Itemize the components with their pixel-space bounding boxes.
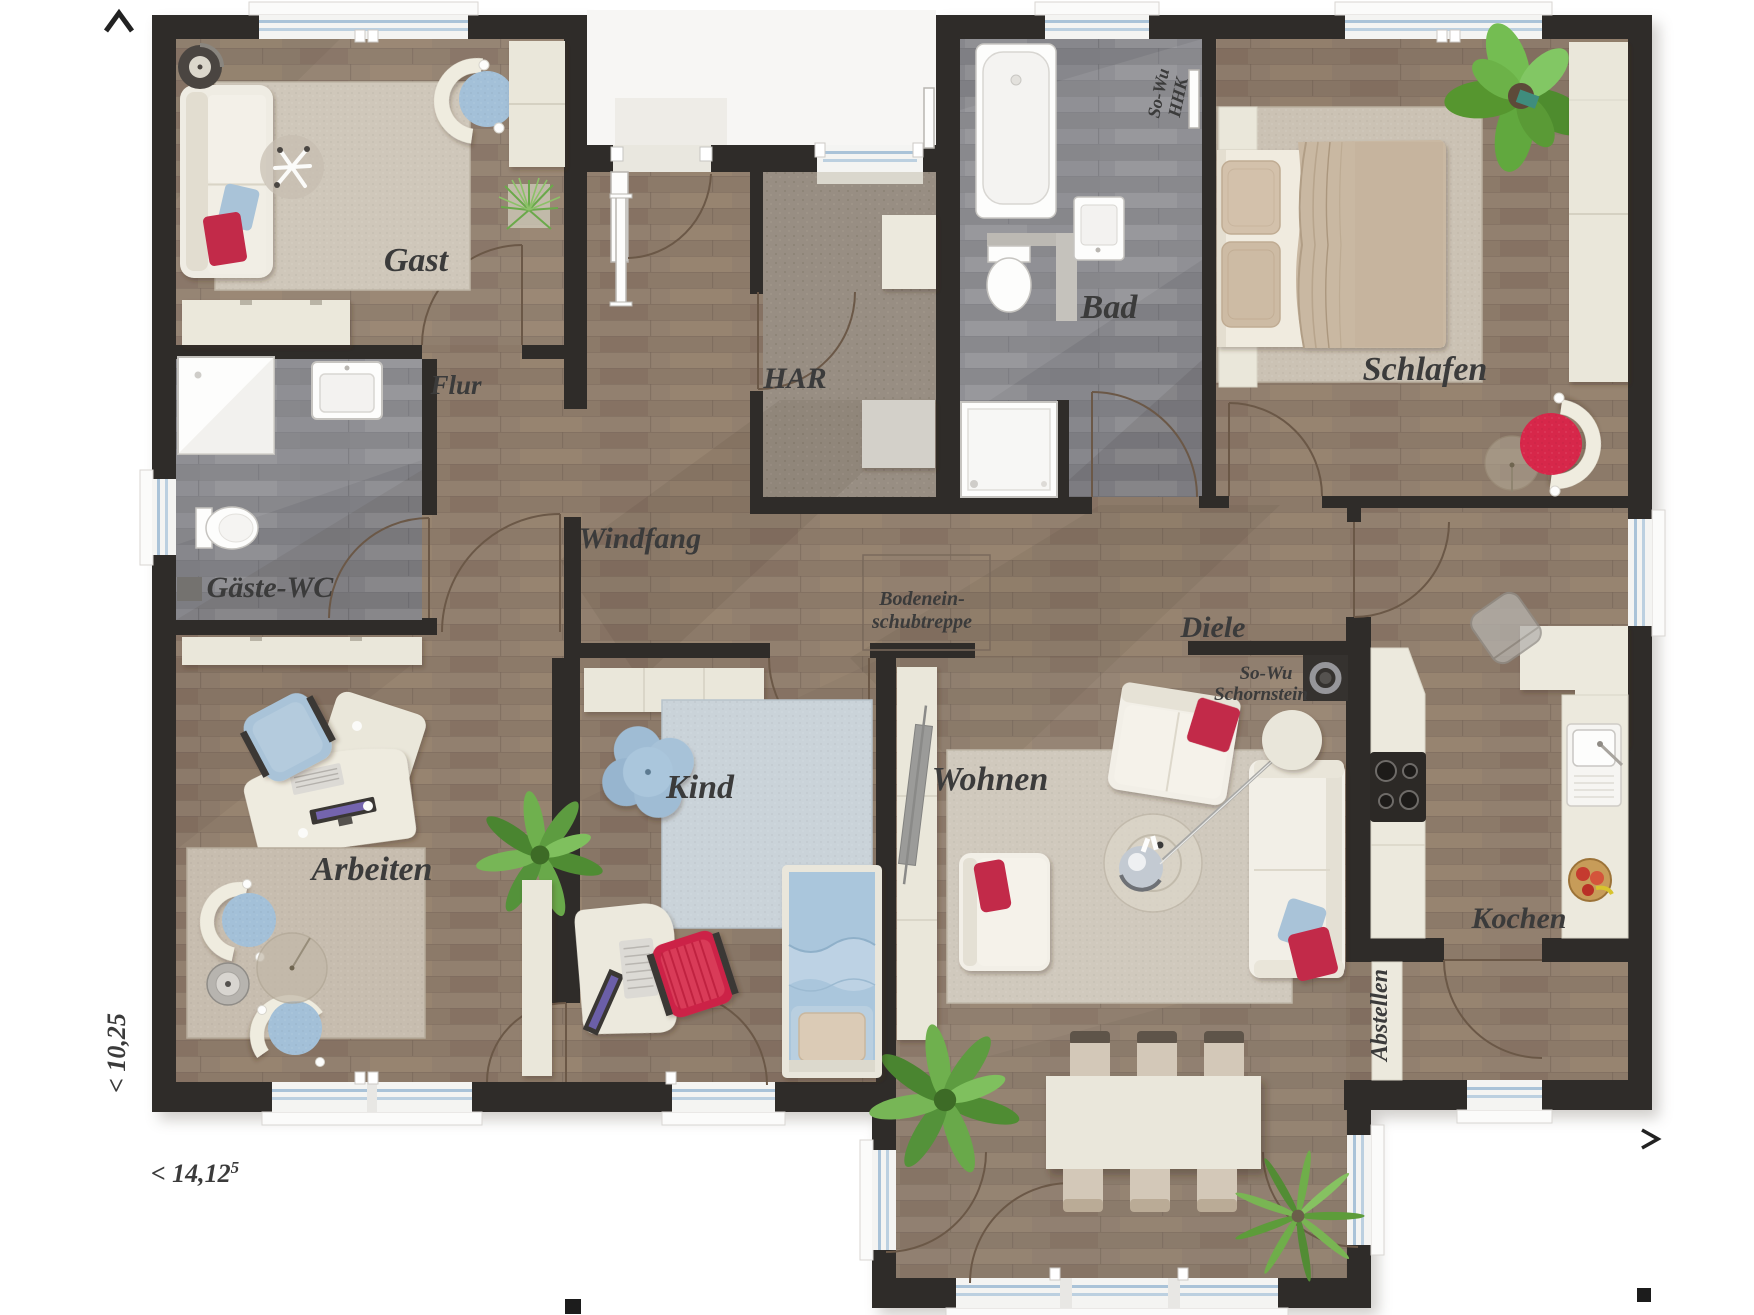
svg-text:Kind: Kind [665, 769, 735, 806]
svg-text:Wohnen: Wohnen [932, 761, 1049, 798]
svg-text:Flur: Flur [429, 370, 482, 400]
svg-text:Windfang: Windfang [579, 522, 701, 555]
svg-text:< 10,25: < 10,25 [102, 1013, 131, 1093]
svg-text:Diele: Diele [1180, 611, 1246, 644]
svg-text:Abstellen: Abstellen [1367, 969, 1393, 1063]
svg-text:Gäste-WC: Gäste-WC [207, 571, 335, 604]
svg-text:So-Wu: So-Wu [1240, 663, 1293, 684]
svg-text:Arbeiten: Arbeiten [310, 851, 433, 888]
svg-text:Bad: Bad [1080, 289, 1139, 326]
svg-text:Schornstein: Schornstein [1214, 684, 1308, 705]
svg-text:Kochen: Kochen [1470, 902, 1566, 935]
svg-text:schubtreppe: schubtreppe [871, 611, 972, 633]
svg-text:Gast: Gast [384, 242, 450, 279]
svg-text:Bodenein-: Bodenein- [878, 588, 965, 610]
svg-text:Schlafen: Schlafen [1363, 351, 1488, 388]
svg-text:HAR: HAR [762, 362, 826, 395]
svg-text:< 14,125: < 14,125 [151, 1158, 240, 1188]
